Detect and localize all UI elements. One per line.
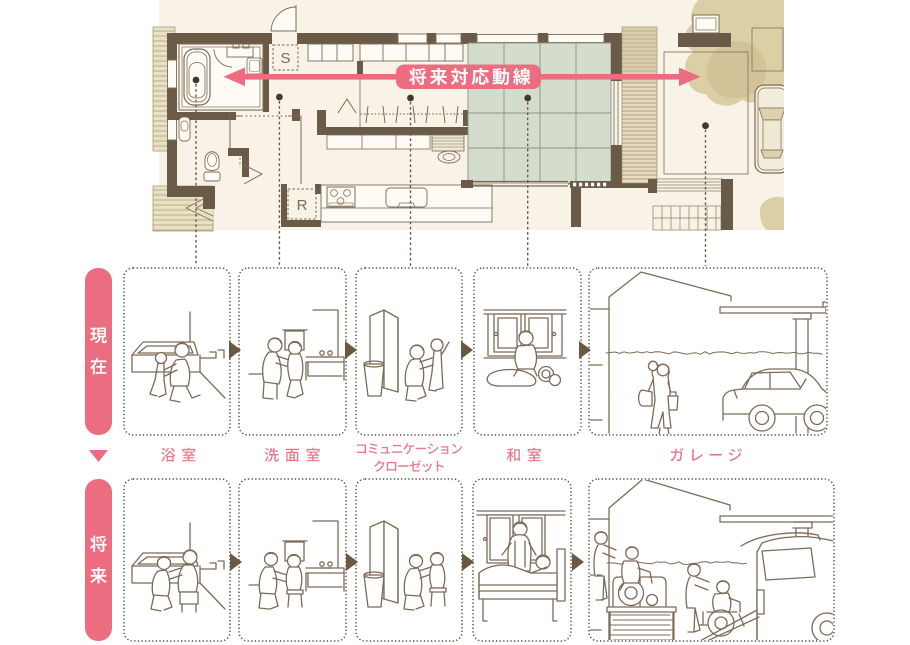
svg-text:R: R	[297, 197, 308, 214]
svg-text:S: S	[280, 50, 290, 67]
